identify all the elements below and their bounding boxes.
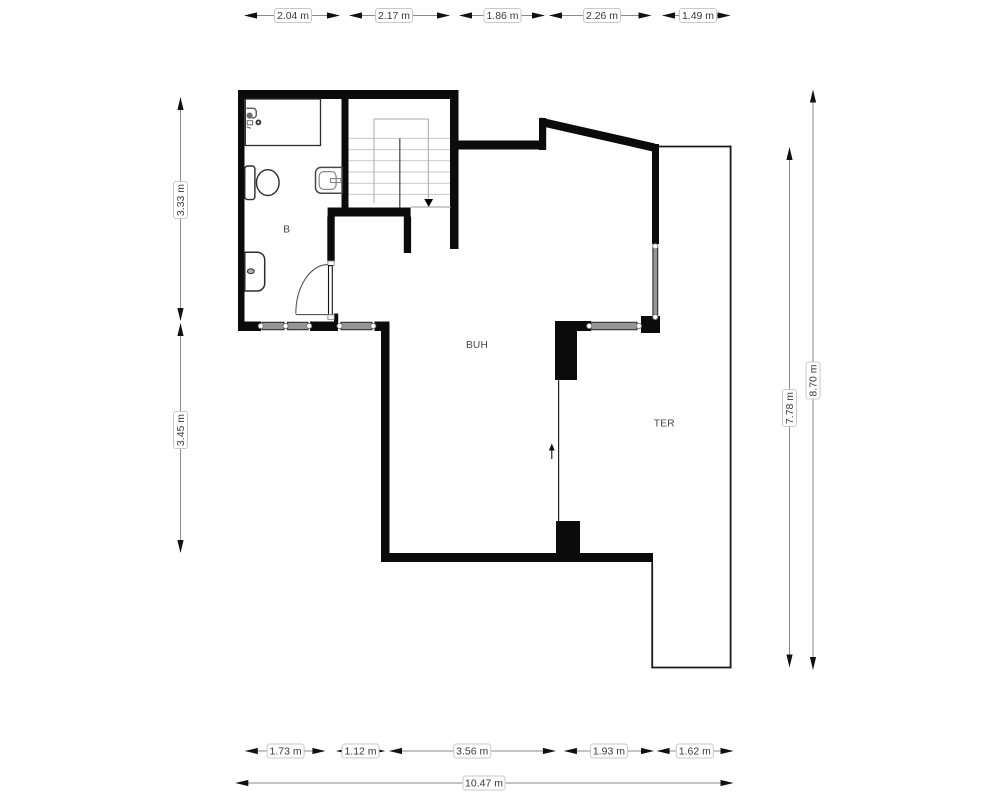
svg-text:3.56 m: 3.56 m bbox=[456, 746, 488, 758]
svg-text:3.45 m: 3.45 m bbox=[175, 414, 187, 446]
svg-text:3.33 m: 3.33 m bbox=[175, 184, 187, 216]
svg-text:1.12 m: 1.12 m bbox=[344, 746, 376, 758]
svg-text:1.49 m: 1.49 m bbox=[682, 10, 714, 22]
svg-text:1.62 m: 1.62 m bbox=[679, 746, 711, 758]
svg-text:BUH: BUH bbox=[466, 340, 488, 351]
svg-text:7.78 m: 7.78 m bbox=[784, 392, 796, 424]
svg-text:1.93 m: 1.93 m bbox=[593, 746, 625, 758]
svg-text:8.70 m: 8.70 m bbox=[808, 364, 820, 396]
svg-text:TER: TER bbox=[654, 418, 675, 429]
svg-text:1.86 m: 1.86 m bbox=[486, 10, 518, 22]
svg-text:2.26 m: 2.26 m bbox=[586, 10, 618, 22]
svg-text:2.17 m: 2.17 m bbox=[378, 10, 410, 22]
svg-text:2.04 m: 2.04 m bbox=[277, 10, 309, 22]
svg-text:B: B bbox=[283, 224, 290, 235]
svg-text:10.47 m: 10.47 m bbox=[465, 778, 503, 790]
svg-text:1.73 m: 1.73 m bbox=[270, 746, 302, 758]
